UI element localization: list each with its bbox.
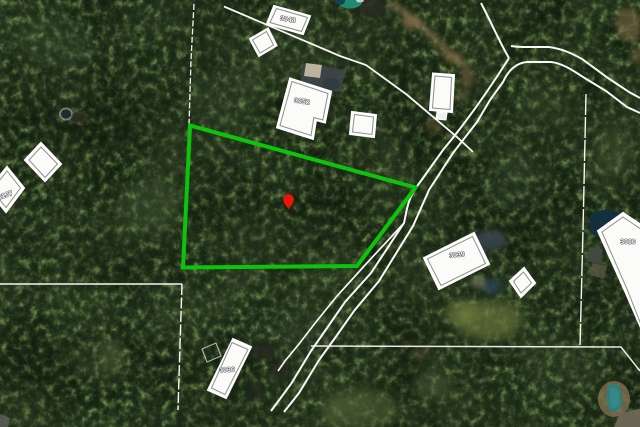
svg-text:3036: 3036: [219, 367, 235, 375]
svg-text:3080: 3080: [620, 239, 636, 246]
